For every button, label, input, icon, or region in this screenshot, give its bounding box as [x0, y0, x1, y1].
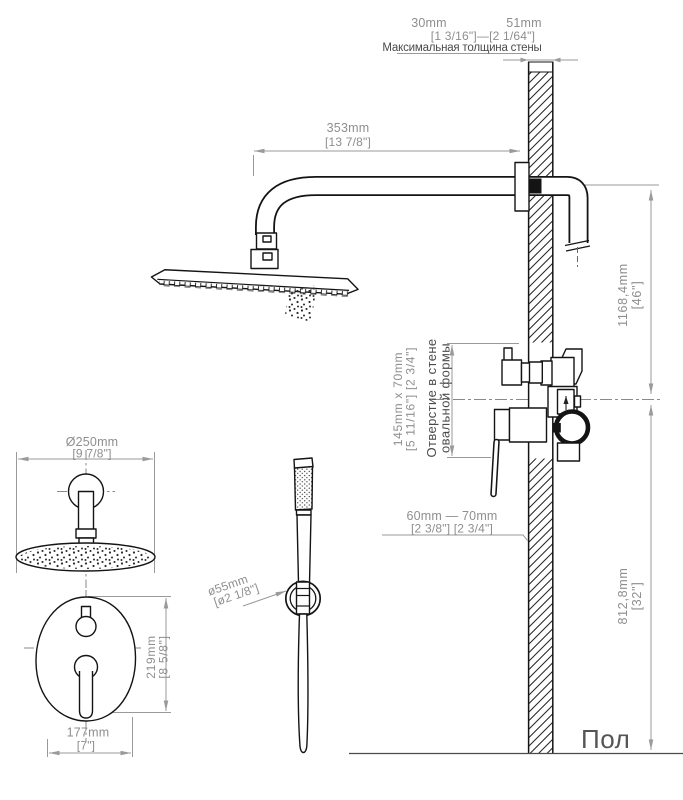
rain-shower-head-front	[16, 474, 155, 571]
handpiece-body	[297, 515, 311, 583]
floor-label: Пол	[581, 724, 630, 754]
wall-hole-caption: Отверстие в стене овальной формы	[424, 338, 453, 457]
shower-hose	[298, 614, 308, 753]
wall-thickness-min: 30mm	[411, 16, 447, 30]
arm-length-mm: 353mm	[327, 121, 370, 135]
wall-thickness-caption: Максимальная толщина стены	[382, 42, 541, 54]
svg-text:[46"]: [46"]	[630, 281, 644, 310]
valve-body	[551, 358, 574, 388]
head-diameter-in: [9 7/8"]	[72, 447, 111, 461]
valve-depth-in: [2 3/8"] [2 3/4"]	[411, 522, 493, 536]
shower-installation-diagram: 30mm 51mm [1 3/16"]—[2 1/64"] Максимальн…	[0, 0, 683, 800]
lower-height-label: 812,8mm [32"]	[616, 567, 644, 624]
upper-height-label: 1168,4mm [46"]	[616, 263, 644, 327]
holder-diameter-label: ø55mm [ø2 1/8"]	[206, 569, 261, 610]
svg-text:овальной формы: овальной формы	[438, 343, 453, 453]
arm-length-in: [13 7/8"]	[325, 135, 371, 149]
valve-depth-leader	[382, 535, 528, 541]
wall-thickness-inches: [1 3/16"]—[2 1/64"]	[431, 29, 535, 43]
holder-clamp	[297, 582, 310, 614]
trim-height-label: 219mm [8 5/8"]	[144, 635, 171, 679]
svg-text:812,8mm: 812,8mm	[616, 567, 630, 624]
valve-bottom-connector	[558, 443, 580, 461]
svg-text:[32"]: [32"]	[630, 582, 644, 611]
diverter-button	[76, 617, 96, 637]
diagram-canvas: 30mm 51mm [1 3/16"]—[2 1/64"] Максимальн…	[0, 0, 683, 800]
lever-grip	[80, 671, 93, 718]
trim-width-in: [7"]	[77, 739, 95, 753]
handle-escutcheon	[495, 410, 510, 441]
round-head-nozzles	[20, 546, 152, 569]
head-arm	[79, 492, 94, 531]
arm-wall-flange	[515, 163, 529, 212]
wall-hole-size-label: 145mm x 70mm [5 11/16"] [2 3/4"]	[391, 347, 418, 451]
wall-seal	[530, 179, 542, 194]
diverter-knob-stem	[504, 348, 512, 361]
rain-shower-head-side	[151, 267, 359, 297]
handpiece-spray-face	[295, 467, 313, 511]
hand-shower	[286, 458, 320, 753]
diverter-knob	[502, 360, 522, 385]
svg-text:[8 5/8"]: [8 5/8"]	[157, 635, 171, 678]
valve-cartridge-body	[510, 408, 547, 442]
svg-text:1168,4mm: 1168,4mm	[616, 263, 630, 327]
trim-width-mm: 177mm	[67, 726, 110, 740]
mixer-trim-front	[36, 597, 136, 721]
svg-text:[5 11/16"] [2 3/4"]: [5 11/16"] [2 3/4"]	[404, 347, 418, 451]
arm-length-dimension	[254, 151, 521, 176]
wall-thickness-max: 51mm	[506, 16, 542, 30]
